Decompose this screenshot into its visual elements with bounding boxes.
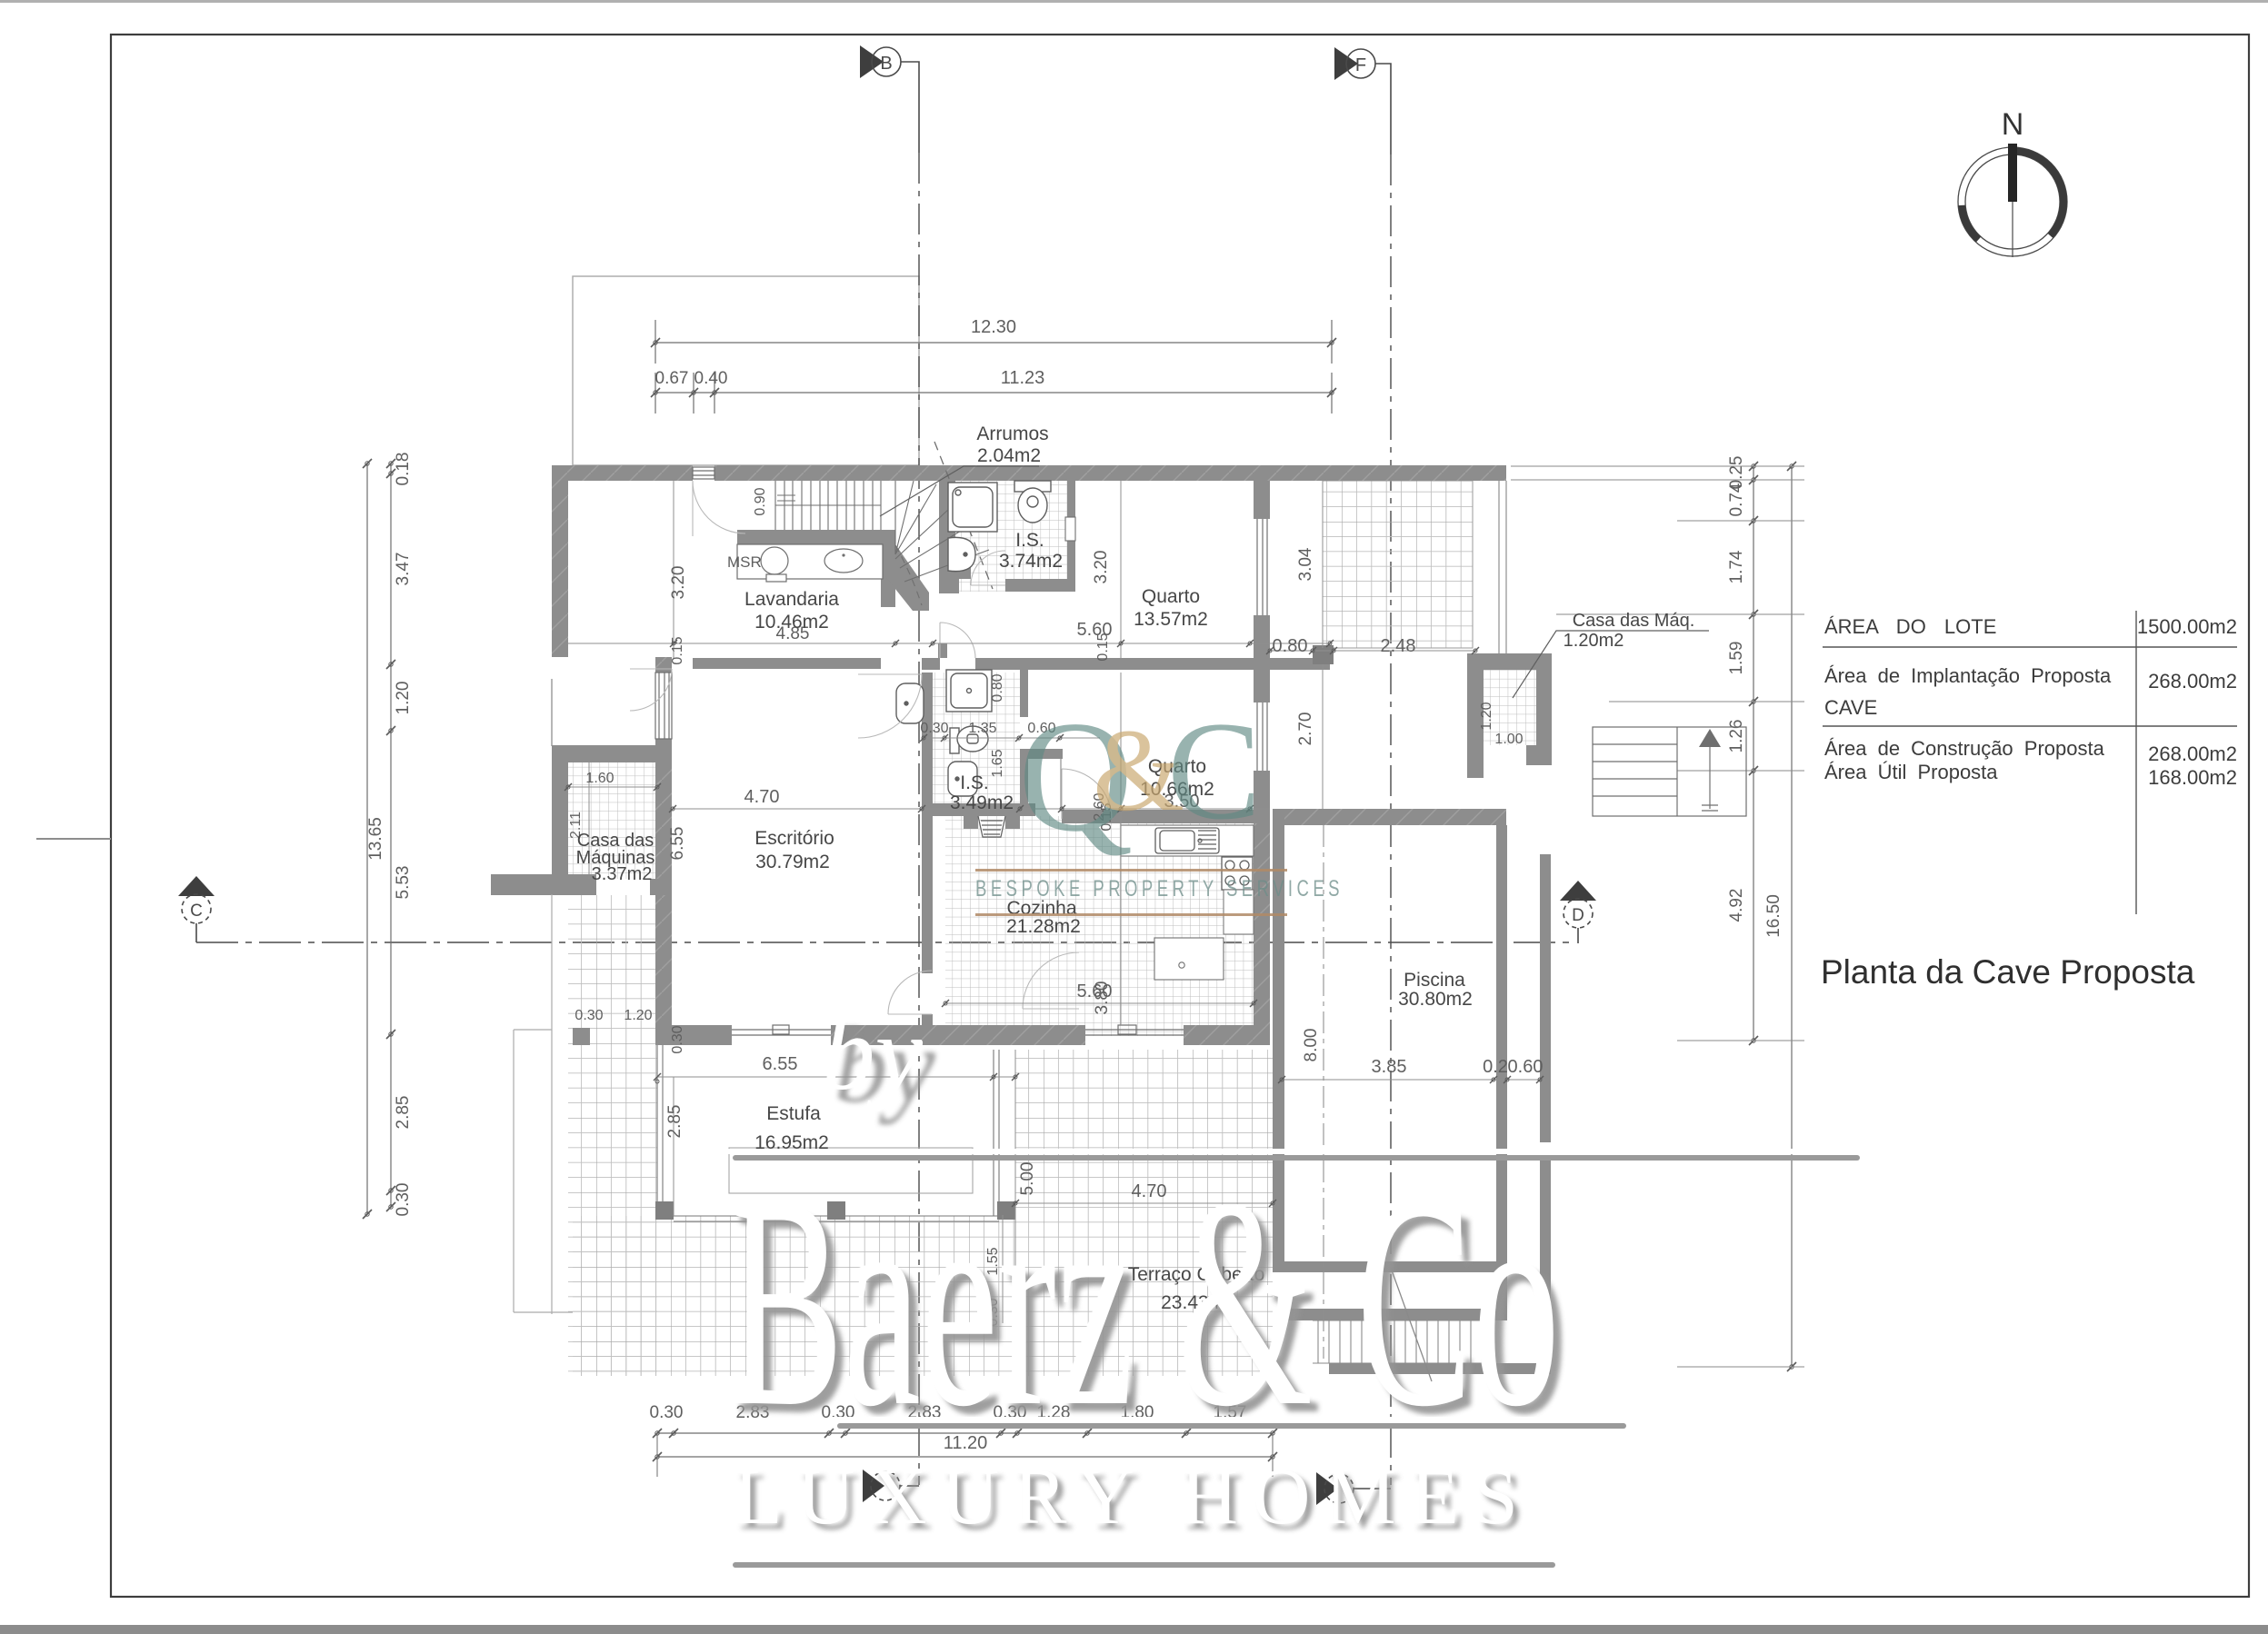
svg-text:0.2: 0.2 [1483,1057,1508,1077]
svg-text:0.30: 0.30 [920,721,948,736]
svg-text:0.80: 0.80 [1273,636,1308,656]
svg-text:30.79m2: 30.79m2 [755,852,830,872]
svg-text:1.59: 1.59 [1727,642,1746,675]
svg-text:1.74: 1.74 [1727,550,1746,583]
svg-text:0.90: 0.90 [753,487,768,515]
svg-text:1.20: 1.20 [394,682,413,715]
svg-text:C: C [1167,692,1261,849]
svg-text:0.67: 0.67 [655,369,689,388]
svg-text:4.70: 4.70 [744,787,780,807]
svg-text:3.04: 3.04 [1296,547,1315,581]
svg-text:1.20m2: 1.20m2 [1564,631,1624,651]
svg-text:268.00m2: 268.00m2 [2148,670,2237,692]
svg-text:0.74: 0.74 [1727,483,1746,516]
svg-text:N: N [2002,107,2024,142]
svg-text:2.85: 2.85 [394,1096,413,1130]
svg-text:3.37m2: 3.37m2 [592,864,653,884]
svg-text:0.40: 0.40 [694,369,728,388]
svg-text:Área Útil Proposta: Área Útil Proposta [1824,761,1998,783]
svg-text:Área de Implantação Propost: Área de Implantação Proposta [1824,664,2112,687]
svg-text:F: F [1355,55,1366,75]
svg-text:13.57m2: 13.57m2 [1134,609,1208,630]
svg-text:BESPOKE PROPERTY SERVICES: BESPOKE PROPERTY SERVICES [975,876,1344,902]
svg-text:6.55: 6.55 [668,827,687,861]
svg-text:268.00m2: 268.00m2 [2148,742,2237,765]
svg-text:3.20: 3.20 [1092,551,1111,584]
svg-text:Piscina: Piscina [1404,970,1465,991]
svg-text:3.20: 3.20 [669,566,688,600]
svg-text:21.28m2: 21.28m2 [1006,916,1081,937]
svg-text:Lavandaria: Lavandaria [744,589,839,610]
svg-text:12.30: 12.30 [971,317,1016,337]
svg-text:1.20: 1.20 [1479,702,1494,730]
svg-text:Quarto: Quarto [1142,586,1200,607]
svg-text:0.15: 0.15 [670,636,685,664]
svg-text:0.80: 0.80 [990,673,1005,702]
svg-text:1500.00m2: 1500.00m2 [2137,615,2237,638]
svg-text:C: C [190,902,203,921]
svg-text:5.53: 5.53 [394,866,413,900]
svg-text:0.30: 0.30 [650,1403,684,1422]
svg-text:1.00: 1.00 [1494,732,1523,747]
svg-text:I.S.: I.S. [960,772,989,793]
svg-text:MSR: MSR [727,553,762,571]
svg-text:2.70: 2.70 [1296,712,1315,746]
svg-text:0.30: 0.30 [574,1008,603,1023]
svg-text:2.04m2: 2.04m2 [977,445,1041,466]
svg-text:B: B [880,54,892,74]
svg-text:LUXURY HOMES: LUXURY HOMES [734,1453,1545,1541]
svg-text:by: by [822,993,924,1112]
svg-text:Estufa: Estufa [766,1103,821,1124]
svg-text:5.60: 5.60 [1077,981,1113,1001]
svg-text:0.30: 0.30 [394,1183,413,1217]
svg-text:3.47: 3.47 [394,553,413,586]
svg-text:0.60: 0.60 [1508,1057,1544,1077]
svg-text:Escritório: Escritório [754,828,834,849]
svg-text:1.65: 1.65 [990,749,1005,777]
svg-text:168.00m2: 168.00m2 [2148,766,2237,789]
svg-text:2.48: 2.48 [1381,636,1416,656]
svg-text:3.85: 3.85 [1372,1057,1407,1077]
svg-text:5.60: 5.60 [1077,620,1113,640]
svg-text:1.35: 1.35 [968,721,996,736]
svg-text:8.00: 8.00 [1302,1029,1321,1062]
svg-text:1.20: 1.20 [624,1008,652,1023]
svg-text:1.60: 1.60 [585,771,614,786]
svg-text:D: D [1572,906,1584,925]
svg-text:10.46m2: 10.46m2 [754,612,829,633]
svg-text:1.26: 1.26 [1727,720,1746,753]
svg-text:6.55: 6.55 [763,1054,798,1074]
svg-text:ÁREA DO LOTE: ÁREA DO LOTE [1824,615,1996,638]
svg-text:11.23: 11.23 [1001,368,1045,388]
svg-text:13.65: 13.65 [366,817,385,861]
svg-text:2.85: 2.85 [665,1105,684,1139]
svg-text:0.30: 0.30 [670,1025,685,1053]
svg-text:I.S.: I.S. [1015,530,1044,551]
svg-text:Casa das Máq.: Casa das Máq. [1573,611,1695,631]
svg-text:Arrumos: Arrumos [976,423,1048,444]
svg-text:16.50: 16.50 [1764,894,1783,938]
svg-text:Área de Construção Proposta: Área de Construção Proposta [1824,737,2105,760]
svg-text:0.18: 0.18 [394,453,413,486]
svg-text:3.49m2: 3.49m2 [950,792,1014,813]
svg-text:30.80m2: 30.80m2 [1398,989,1473,1010]
svg-text:CAVE: CAVE [1824,696,1877,719]
svg-text:3.74m2: 3.74m2 [999,551,1063,572]
svg-text:Planta da Cave Proposta: Planta da Cave Proposta [1821,953,2195,991]
svg-text:4.92: 4.92 [1727,889,1746,922]
